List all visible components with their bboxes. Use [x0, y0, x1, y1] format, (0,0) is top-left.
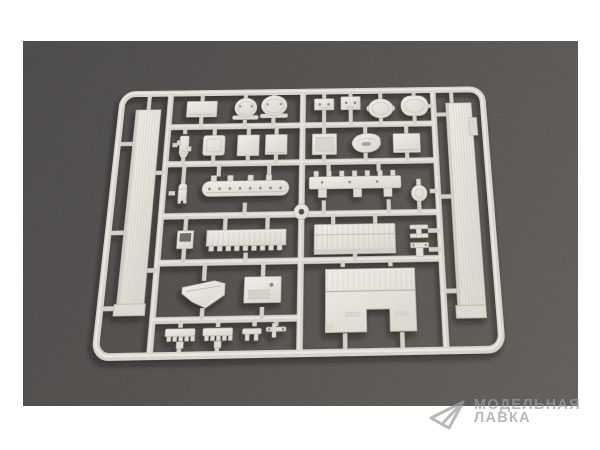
watermark-text: МОДЕЛЬНАЯ ЛАВКА — [474, 399, 581, 425]
part-periscope-mushroom — [411, 179, 428, 201]
part-t-bracket — [411, 242, 430, 256]
sprue-svg — [93, 88, 504, 359]
photo-background — [23, 41, 578, 406]
part-small-sprocket — [177, 183, 187, 204]
part-hinged-hatch-oval — [366, 99, 395, 119]
part-curved-fender — [352, 133, 381, 152]
part-serrated-bracket-a — [164, 329, 195, 349]
watermark: МОДЕЛЬНАЯ ЛАВКА — [427, 399, 581, 432]
part-capsule-hatch — [400, 96, 428, 116]
part-open-stowage-box — [176, 231, 193, 249]
photo-canvas: МОДЕЛЬНАЯ ЛАВКА — [0, 0, 600, 450]
part-center-ring — [294, 204, 309, 220]
part-rounded-box — [202, 135, 225, 155]
part-hull-superstructure — [325, 268, 417, 333]
part-axle-fittings — [242, 323, 286, 341]
part-recessed-box — [312, 134, 336, 155]
part-square-panel-a — [237, 135, 260, 156]
part-chassis-rail — [202, 175, 290, 197]
part-ribbed-deck-panel — [314, 223, 396, 254]
paper-plane-logo-icon — [427, 399, 467, 432]
part-rect-panel — [393, 133, 421, 152]
part-hatch-dome-large — [260, 95, 288, 118]
part-bracket-b — [341, 97, 361, 110]
part-h-bracket — [410, 225, 428, 238]
part-angled-glacis-plate — [181, 280, 225, 308]
part-serrated-bracket-b — [202, 328, 233, 348]
sprue-perspective-wrap — [93, 88, 504, 359]
part-flat-plate — [186, 101, 217, 117]
sprue — [94, 89, 502, 358]
watermark-line2: ЛАВКА — [474, 412, 581, 425]
part-square-panel-b — [265, 134, 287, 154]
part-studded-beam — [309, 170, 401, 198]
part-toothed-beam — [206, 229, 286, 251]
part-crank-lever — [176, 136, 192, 158]
part-bracket-a — [314, 99, 333, 111]
part-stepped-housing — [244, 276, 282, 303]
part-hatch-dome-small — [232, 98, 259, 120]
